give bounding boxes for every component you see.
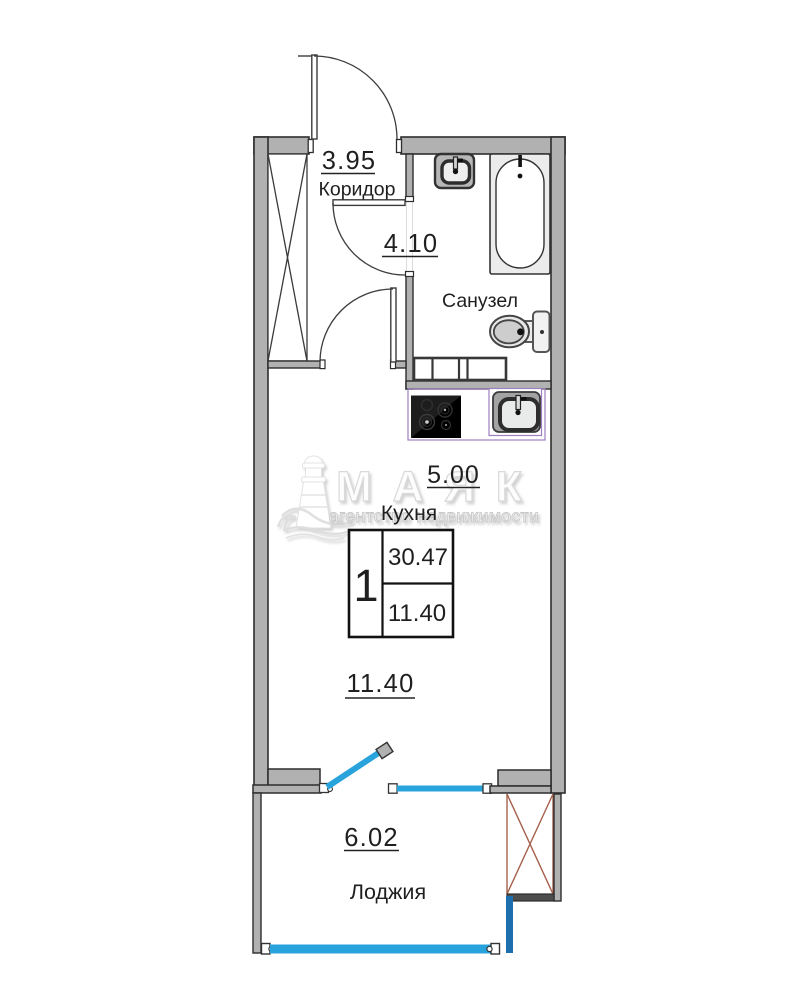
svg-text:Санузел: Санузел	[442, 290, 518, 312]
svg-text:4.10: 4.10	[384, 230, 438, 258]
svg-text:Кухня: Кухня	[381, 502, 437, 525]
svg-text:6.02: 6.02	[344, 824, 398, 852]
svg-text:Коридор: Коридор	[318, 179, 395, 201]
svg-text:3.95: 3.95	[322, 147, 376, 175]
svg-text:Лоджия: Лоджия	[350, 880, 426, 904]
svg-text:11.40: 11.40	[347, 670, 415, 698]
svg-text:1: 1	[353, 560, 378, 611]
svg-text:5.00: 5.00	[427, 461, 480, 489]
svg-text:11.40: 11.40	[388, 600, 446, 627]
svg-text:30.47: 30.47	[388, 544, 448, 571]
